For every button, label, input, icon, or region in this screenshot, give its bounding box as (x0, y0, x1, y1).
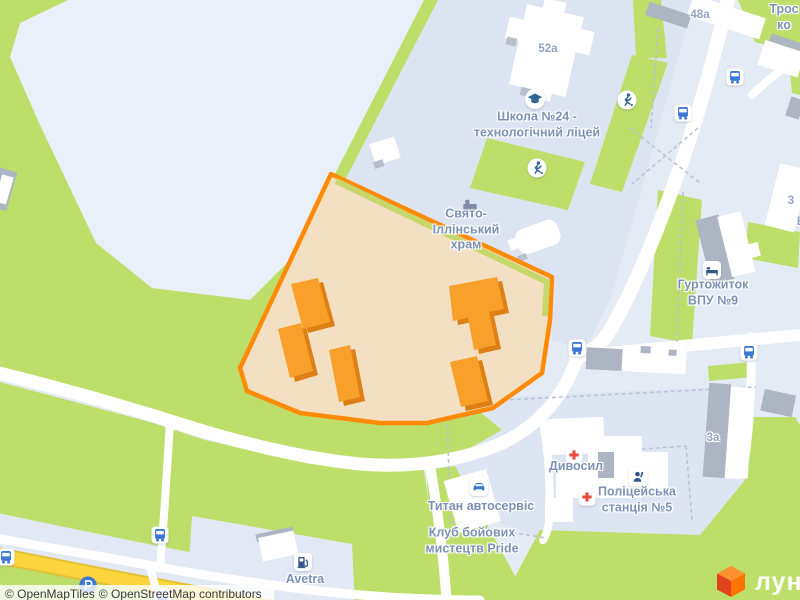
lun-cube-icon (716, 566, 746, 598)
medical-cross-icon (566, 447, 583, 464)
attribution-bar: © OpenMapTiles© OpenStreetMap contributo… (0, 585, 274, 600)
graduation-cap-icon (525, 89, 546, 110)
police-icon (629, 468, 648, 487)
map-canvas[interactable]: 52a 48a Трос ко Школа №24 - технологічни… (0, 0, 800, 600)
bus-stop-icon (741, 344, 758, 361)
lun-logo-text: лун (755, 566, 800, 598)
fuel-pump-icon (294, 553, 312, 571)
church-icon (461, 196, 480, 215)
bus-stop-icon (727, 69, 744, 86)
runner-icon (617, 90, 637, 110)
map-tiles (0, 0, 800, 600)
bus-stop-icon (569, 340, 586, 357)
bus-stop-icon (675, 105, 692, 122)
car-icon (470, 478, 488, 496)
bus-stop-icon (152, 527, 169, 544)
lun-logo[interactable]: лун (716, 566, 800, 598)
bed-icon (703, 261, 721, 279)
osm-link[interactable]: © OpenStreetMap contributors (99, 587, 262, 600)
medical-cross-icon (579, 489, 596, 506)
runner-icon (527, 158, 547, 178)
bus-stop-icon (0, 549, 15, 566)
openmaptiles-link[interactable]: © OpenMapTiles (5, 587, 95, 600)
